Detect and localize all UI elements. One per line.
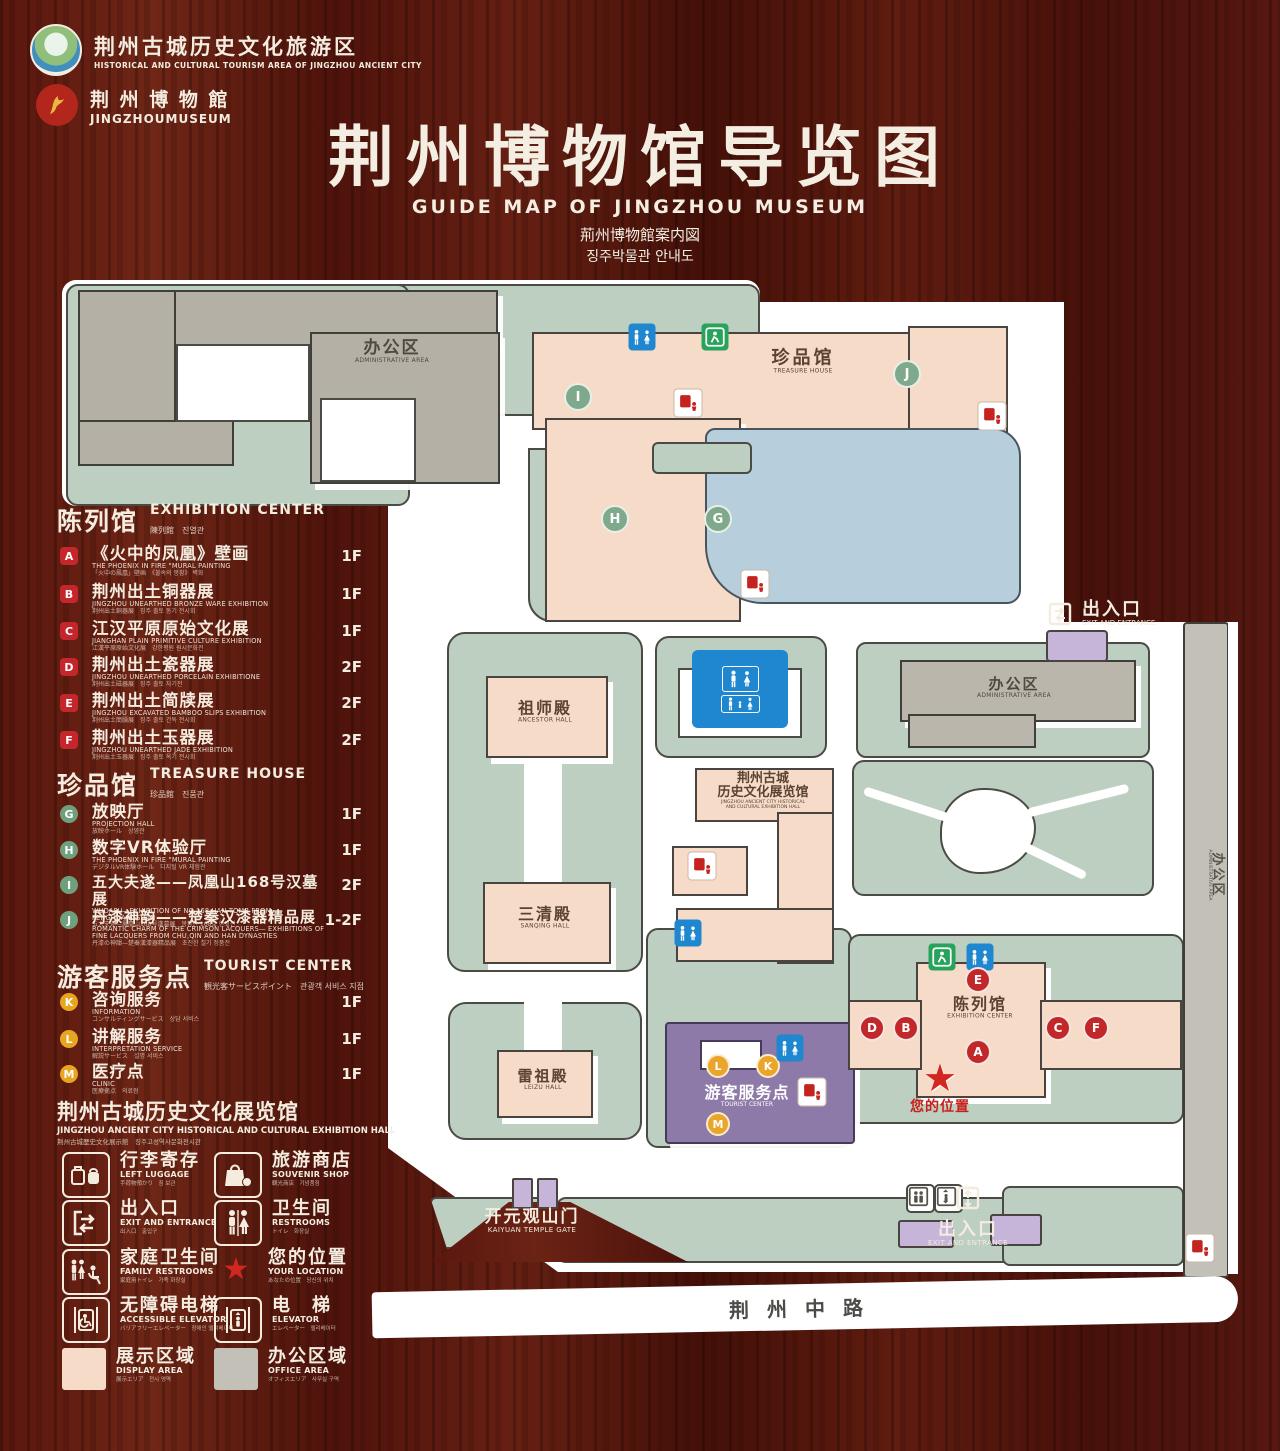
legend-item-e: E 荆州出土简牍展JINGZHOU EXCAVATED BAMBOO SLIPS… [60,692,370,725]
admin-courtyard [176,344,310,422]
legend-section-exhibition: 陈列馆 EXHIBITION CENTER陳列館 진열관 [57,502,325,538]
legend-key-e: E [60,694,78,712]
legend-item-k: K 咨询服务INFORMATIONコンサルティングサービス 상담 서비스 1F [60,991,370,1024]
path-strip-right [1228,622,1238,1274]
legend-key-k: K [60,993,78,1011]
legend-symbol-your-location: ★ 您的位置YOUR LOCATIONあなたの位置 당신의 위치 [214,1249,348,1291]
legend-hall-note: 荆州古城历史文化展览馆 JINGZHOU ANCIENT CITY HISTOR… [57,1096,395,1146]
legend-key-l: L [60,1030,78,1048]
legend-symbol-elevator: 电 梯ELEVATORエレベーター 엘리베이터 [214,1297,336,1343]
gate-label: 开元观山门 KAIYUAN TEMPLE GATE [485,1208,580,1234]
admin-right-building-annex [908,714,1036,748]
admin-right-label: 办公区 ADMINISTRATIVE AREA [977,677,1051,699]
legend-item-a: A 《火中的凤凰》壁画THE PHOENIX IN FIRE "MURAL PA… [60,545,370,578]
legend-item-d: D 荆州出土瓷器展JINGZHOU UNEARTHED PORCELAIN EX… [60,656,370,689]
page-title: 荆州博物馆导览图 [0,104,1280,200]
office-strip-right [1183,622,1229,1278]
legend-item-b: B 荆州出土铜器展JINGZHOU UNEARTHED BRONZE WARE … [60,583,370,616]
your-location-label: 您的位置 [910,1096,970,1116]
legend-symbol-luggage: 行李寄存LEFT LUGGAGE手荷物預かり 짐 보관 [62,1152,200,1198]
office-strip-label: 办公区 ADMINISTRATIVE AREA [1209,815,1227,935]
road: 荆州中路 [372,1276,1239,1339]
legend-key-i: I [60,876,78,894]
ancestor-hall-label: 祖师殿 ANCESTOR HALL [518,700,572,723]
pond-green-islet [652,442,752,474]
map-marker-m: M [706,1112,730,1136]
legend-symbol-display-area: 展示区域DISPLAY AREA展示エリア 전시 영역 [62,1348,196,1390]
road-label: 荆州中路 [729,1291,882,1323]
elevator-icon [214,1297,262,1343]
restroom-icon [675,920,702,947]
legend-section-tourist: 游客服务点 TOURIST CENTER観光客サービスポイント 관광객 서비스 … [57,958,364,994]
emergency-exit-icon [702,324,729,351]
your-location-star-icon: ★ [923,1059,957,1097]
legend-item-j: J 丹漆神韵——楚秦汉漆器精品展ROMANTIC CHARM OF THE CR… [60,909,370,947]
tourism-area-logo-block: 荆州古城历史文化旅游区 HISTORICAL AND CULTURAL TOUR… [30,24,422,76]
accessible-elevator-icon [62,1297,110,1343]
history-hall-label: 荆州古城 历史文化展览馆 JINGZHOU ANCIENT CITY HISTO… [697,772,829,810]
map-marker-b: B [893,1015,919,1041]
elevator-marker-icon [798,1078,827,1107]
page-title-jp: 荊州博物館案内図 [0,224,1280,245]
legend-symbol-restrooms: 卫生间RESTROOMSトイレ 화장실 [214,1200,332,1246]
treasure-house-label: 珍品馆 TREASURE HOUSE [772,349,835,374]
exit-label-topright: 出入口 EXIT AND ENTRANCE [1082,600,1155,627]
family-restroom-icon [62,1249,110,1295]
legend-item-g: G 放映厅PROJECTION HALL放映ホール 상영관 1F [60,803,370,836]
legend-symbol-office-area: 办公区域OFFICE AREAオフィスエリア 사무실 구역 [214,1348,348,1390]
elevator-marker-icon [741,570,770,599]
elevator-marker-icon [674,389,703,418]
tourism-area-logo-cn: 荆州古城历史文化旅游区 [94,31,422,61]
admin-courtyard-2 [320,398,416,482]
exit-icon [62,1200,110,1246]
map-marker-i: I [564,383,592,411]
exit-label-bottom: 出入口 EXIT AND ENTRANCE [928,1220,1008,1247]
leizu-hall-label: 雷祖殿 LEIZU HALL [517,1069,568,1091]
legend-key-b: B [60,585,78,603]
restroom-icon [629,324,656,351]
legend-key-m: M [60,1065,78,1083]
gate-post [537,1178,558,1209]
map-marker-f: F [1083,1015,1109,1041]
elevator-marker-icon [978,402,1007,431]
sanqing-hall-label: 三清殿 SANQING HALL [518,906,572,929]
shopping-bag-icon [214,1152,262,1198]
legend-key-f: F [60,731,78,749]
admin-topleft-label: 办公区 ADMINISTRATIVE AREA [355,340,429,364]
legend-symbol-accessible-elevator: 无障碍电梯ACCESSIBLE ELEVATORバリアフリーエレベーター 장애인… [62,1297,234,1343]
legend-key-j: J [60,911,78,929]
legend-key-a: A [60,547,78,565]
admin-building-foot [78,420,234,466]
your-location-star-icon: ★ [214,1249,258,1291]
gate-post [512,1178,533,1209]
map-marker-a: A [965,1039,991,1065]
tourism-area-logo-en: HISTORICAL AND CULTURAL TOURISM AREA OF … [94,61,422,70]
legend-symbol-family-restrooms: 家庭卫生间FAMILY RESTROOMS家庭用トイレ 가족 화장실 [62,1249,220,1295]
map-marker-g: G [704,505,732,533]
map-marker-e: E [965,967,991,993]
luggage-icon [62,1152,110,1198]
restroom-icon [777,1035,804,1062]
accessible-elevator-icon [906,1184,935,1213]
legend-item-h: H 数字VR体验厅THE PHOENIX IN FIRE "MURAL PAIN… [60,839,370,872]
elevator-marker-icon [688,852,717,881]
legend-section-treasure: 珍品馆 TREASURE HOUSE珍品館 진품관 [57,766,306,802]
map-marker-h: H [601,505,629,533]
legend-key-d: D [60,658,78,676]
map-marker-d: D [859,1015,885,1041]
legend-item-c: C 江汉平原原始文化展JIANGHAN PLAIN PRIMITIVE CULT… [60,620,370,653]
map-marker-j: J [893,360,921,388]
restroom-building [692,650,788,728]
restroom-icon [214,1200,262,1246]
display-area-swatch [62,1348,106,1390]
legend-key-c: C [60,622,78,640]
map-marker-c: C [1045,1015,1071,1041]
small-building-lavender [1046,630,1108,662]
legend-key-h: H [60,841,78,859]
map-marker-l: L [706,1054,730,1078]
tourism-area-logo-icon [30,24,82,76]
legend-item-m: M 医疗点CLINIC医療拠点 의료점 1F [60,1063,370,1096]
office-area-swatch [214,1348,258,1390]
exhibition-center-label: 陈列馆 EXHIBITION CENTER [947,996,1013,1019]
page-title-kr: 징주박물관 안내도 [0,246,1280,266]
exit-icon [1048,602,1072,626]
elevator-marker-icon [1186,1234,1215,1263]
emergency-exit-icon [929,944,956,971]
legend-key-g: G [60,805,78,823]
legend-item-f: F 荆州出土玉器展JINGZHOU UNEARTHED JADE EXHIBIT… [60,729,370,762]
legend-symbol-shop: 旅游商店SOUVENIR SHOP観光商店 기념품점 [214,1152,352,1198]
exit-icon [956,1186,980,1210]
page-title-en: GUIDE MAP OF JINGZHOU MUSEUM [0,196,1280,218]
legend-item-l: L 讲解服务INTERPRETATION SERVICE解説サービス 설명 서비… [60,1028,370,1061]
legend-symbol-exit: 出入口EXIT AND ENTRANCE出入口 출입구 [62,1200,217,1246]
